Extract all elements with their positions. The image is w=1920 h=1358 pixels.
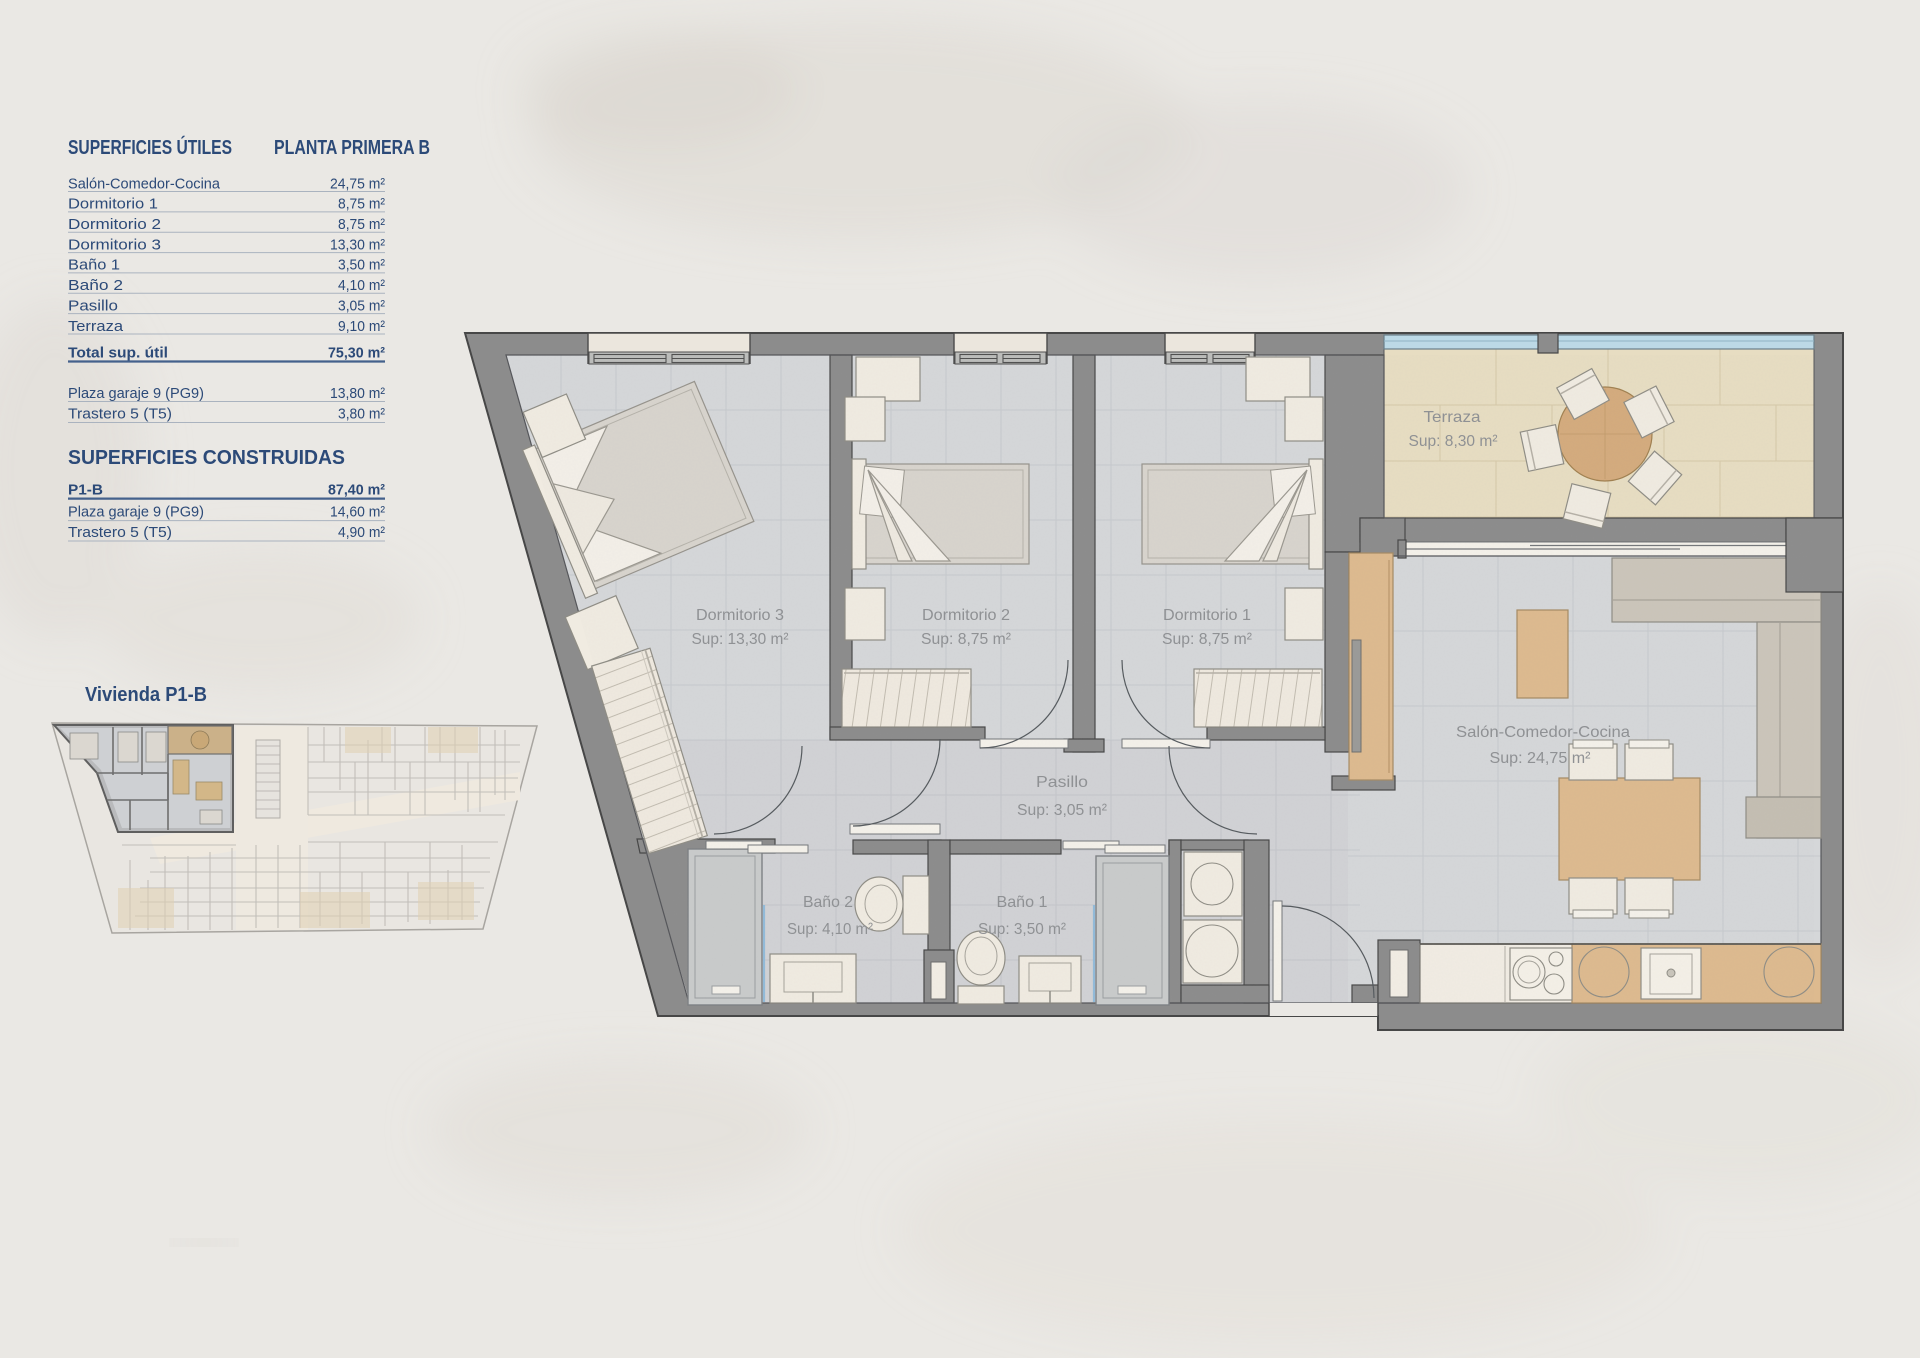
svg-text:4,90 m²: 4,90 m² [338,524,385,541]
svg-text:Dormitorio 2: Dormitorio 2 [68,216,161,233]
svg-text:Total sup. útil: Total sup. útil [68,344,168,361]
svg-text:Vivienda P1-B: Vivienda P1-B [85,684,207,706]
svg-text:4,10 m²: 4,10 m² [338,277,385,294]
svg-text:13,30 m²: 13,30 m² [330,236,385,253]
svg-text:3,50 m²: 3,50 m² [338,257,385,274]
svg-text:3,80 m²: 3,80 m² [338,406,385,423]
svg-text:SUPERFICIES CONSTRUIDAS: SUPERFICIES CONSTRUIDAS [68,447,345,469]
svg-text:PLANTA PRIMERA B: PLANTA PRIMERA B [274,137,430,159]
svg-text:Plaza garaje 9 (PG9): Plaza garaje 9 (PG9) [68,385,204,402]
svg-text:13,80 m²: 13,80 m² [330,385,385,402]
svg-text:8,75 m²: 8,75 m² [338,196,385,213]
svg-text:Baño 1: Baño 1 [68,257,120,274]
svg-text:Baño 2: Baño 2 [68,277,123,294]
svg-text:Salón-Comedor-Cocina: Salón-Comedor-Cocina [68,175,221,192]
svg-text:24,75 m²: 24,75 m² [330,175,385,192]
svg-text:P1-B: P1-B [68,482,103,499]
svg-text:8,75 m²: 8,75 m² [338,216,385,233]
svg-text:Trastero 5 (T5): Trastero 5 (T5) [68,524,172,541]
svg-text:Dormitorio 1: Dormitorio 1 [68,196,158,213]
svg-text:75,30 m²: 75,30 m² [328,344,385,361]
svg-text:87,40 m²: 87,40 m² [328,482,385,499]
svg-text:Terraza: Terraza [68,318,124,335]
svg-text:9,10 m²: 9,10 m² [338,318,385,335]
svg-text:Plaza garaje 9 (PG9): Plaza garaje 9 (PG9) [68,504,204,521]
svg-text:3,05 m²: 3,05 m² [338,297,385,314]
svg-text:Dormitorio 3: Dormitorio 3 [68,236,161,253]
svg-text:SUPERFICIES ÚTILES: SUPERFICIES ÚTILES [68,135,232,159]
svg-text:14,60 m²: 14,60 m² [330,504,385,521]
svg-text:Trastero 5 (T5): Trastero 5 (T5) [68,406,172,423]
svg-text:Pasillo: Pasillo [68,297,118,314]
